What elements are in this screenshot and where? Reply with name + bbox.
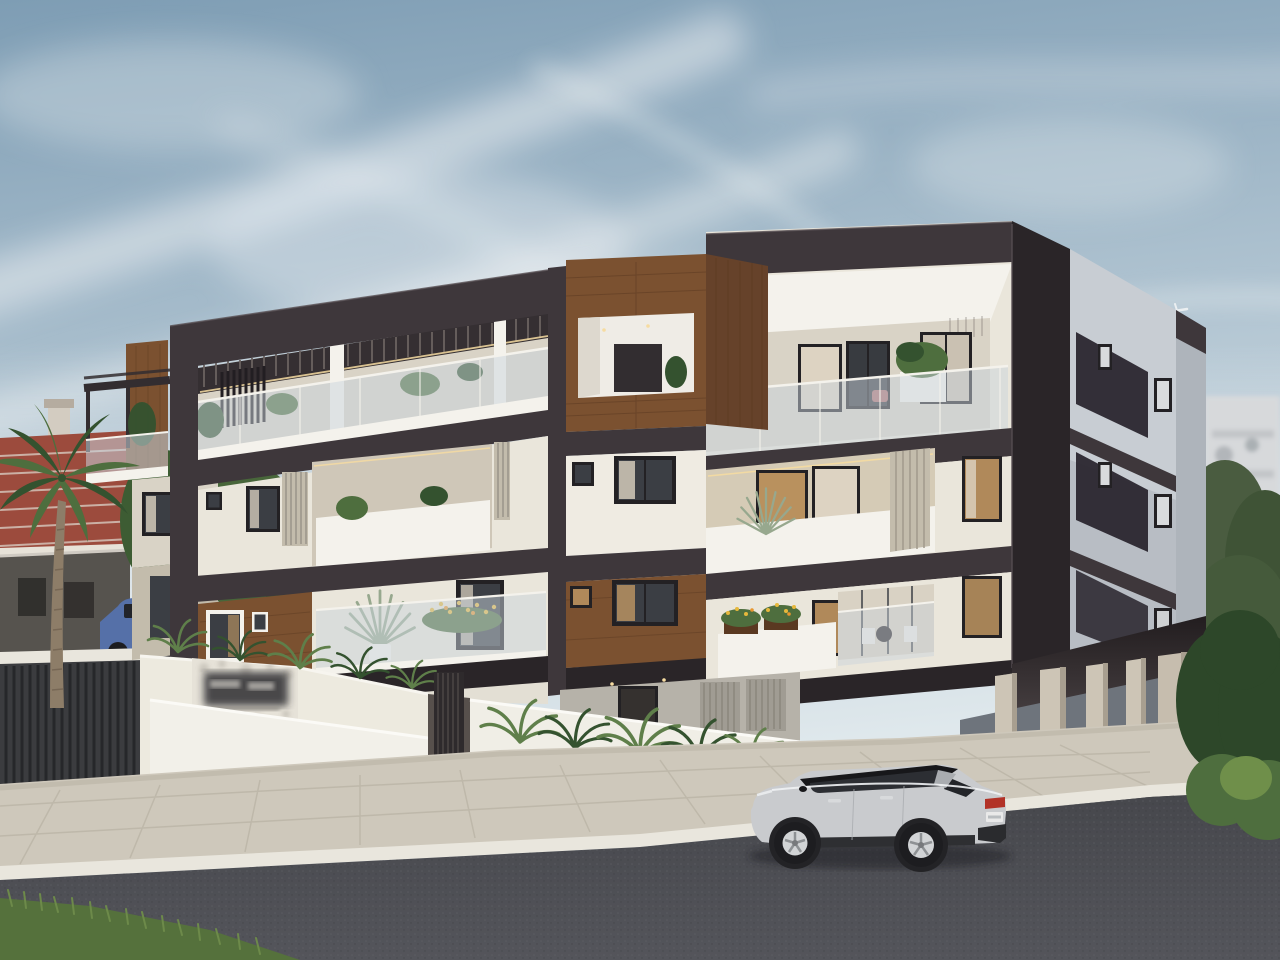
- chimney-cap: [44, 399, 74, 408]
- louvre-door: [746, 679, 786, 731]
- wood-side-face: [706, 254, 768, 430]
- opening-plant: [665, 356, 687, 388]
- entrance-slat-screen: [434, 672, 464, 762]
- setback-side-wall: [1176, 310, 1206, 652]
- rear-wheel: [894, 818, 948, 872]
- middle-recessed-balcony: [312, 444, 492, 568]
- door-handle: [828, 799, 841, 803]
- opening-side-wall: [578, 317, 600, 398]
- taillight: [985, 797, 1005, 809]
- middle-floor-window: [246, 486, 280, 532]
- grey-house-window: [64, 582, 94, 618]
- tower-lower-window: [570, 586, 592, 608]
- louvre-screen: [282, 472, 308, 546]
- slatted-fence: [0, 648, 154, 792]
- lower-balcony: [838, 584, 934, 666]
- left-wing: [170, 270, 548, 712]
- blurred-entrance-sign: [204, 672, 288, 711]
- side-mirror: [799, 786, 807, 792]
- door-handle: [880, 796, 893, 800]
- louvre-screen: [890, 448, 930, 552]
- middle-floor-window: [962, 456, 1002, 522]
- tower-window: [572, 462, 594, 486]
- tower-window: [614, 456, 676, 504]
- middle-floor-window: [206, 492, 222, 510]
- tower-lower-window: [612, 580, 678, 626]
- opening-doorway: [614, 344, 662, 392]
- scene-render: New three-storey apartment building — st…: [0, 0, 1280, 960]
- satellite-dish: [1245, 438, 1259, 452]
- lower-small-window: [252, 612, 268, 632]
- grey-house-window: [18, 578, 46, 616]
- palm-crown: [58, 474, 66, 482]
- louvre-screen: [494, 442, 510, 520]
- tower-dark-edge: [548, 266, 566, 696]
- wood-box-terrace-opening: [578, 313, 694, 398]
- corner-column: [1012, 221, 1070, 672]
- balcony-glass: [838, 602, 934, 666]
- side-balcony-niches: [1076, 332, 1148, 660]
- balcony-plant: [336, 496, 368, 520]
- balcony-plant: [420, 486, 448, 506]
- bright-shrub: [1220, 756, 1272, 800]
- lower-floor-window: [962, 576, 1002, 638]
- front-wheel: [769, 817, 821, 869]
